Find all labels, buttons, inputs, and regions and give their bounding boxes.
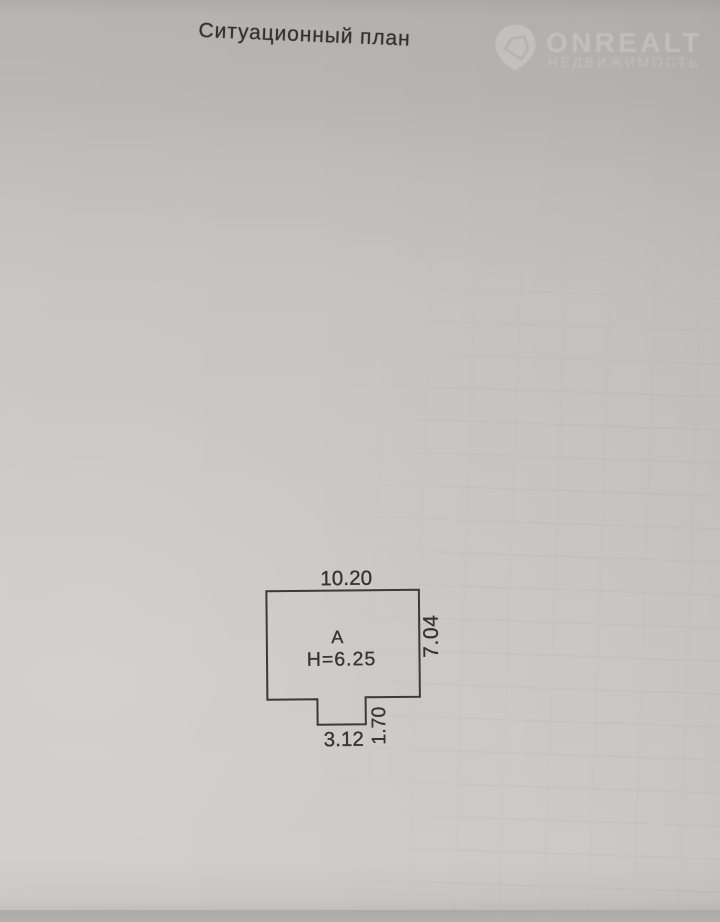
svg-text:3.12: 3.12	[324, 728, 365, 751]
svg-text:Н=6.25: Н=6.25	[307, 648, 377, 671]
svg-text:10.20: 10.20	[320, 567, 372, 590]
svg-text:А: А	[331, 627, 343, 647]
svg-text:7.04: 7.04	[420, 614, 443, 658]
svg-text:1.70: 1.70	[368, 706, 390, 744]
